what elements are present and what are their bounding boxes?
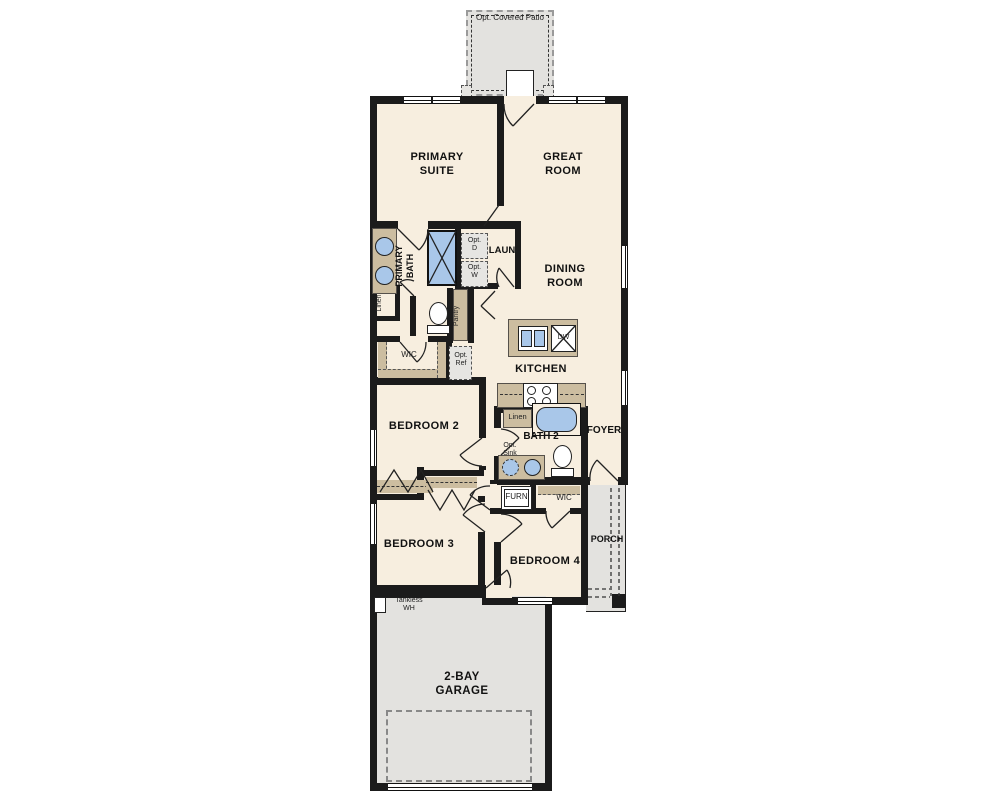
- wall-garage-right: [545, 604, 552, 790]
- wic1-shelf-bottom: [378, 369, 445, 378]
- wall-bath2-right: [581, 406, 588, 485]
- opt-ref-label: Opt. Ref: [449, 352, 473, 368]
- dishwasher-label: DW: [551, 334, 576, 342]
- window-dining-2: [621, 371, 628, 405]
- bed3-closet-shelf-dash: [426, 482, 477, 483]
- linen1-label: Linen: [376, 288, 390, 318]
- opt-washer-label: Opt. W: [461, 264, 488, 280]
- pantry-label: Pantry: [453, 296, 467, 336]
- tub: [536, 407, 577, 432]
- window-bedroom2: [370, 430, 377, 466]
- wall-bedroom3-bottom: [370, 585, 486, 592]
- island-sink-left: [521, 330, 532, 347]
- bath2-opt-sink: [502, 459, 519, 476]
- patio-door-opening: [504, 96, 536, 104]
- bedroom3-label: BEDROOM 3: [359, 537, 479, 551]
- primary-toilet-tank: [427, 325, 450, 334]
- primary-bath-label: PRIMARY BATH: [394, 236, 424, 296]
- patio-label: Opt. Covered Patio: [454, 13, 566, 23]
- furnace-label: FURN: [501, 492, 532, 502]
- bed4-door-opening: [494, 514, 501, 542]
- linen2-label: Linen: [503, 413, 532, 422]
- bedroom2-label: BEDROOM 2: [364, 419, 484, 433]
- bath2-toilet-bowl: [553, 445, 572, 468]
- bedroom4-label: BEDROOM 4: [485, 554, 605, 568]
- bed2-door-opening: [479, 438, 486, 466]
- patio-door-landing: [506, 70, 534, 98]
- opt-dryer-label: Opt. D: [461, 237, 488, 253]
- front-door-opening: [590, 477, 618, 485]
- burner-1: [527, 386, 536, 395]
- burner-2: [542, 386, 551, 395]
- primary-suite-label: PRIMARY SUITE: [377, 150, 497, 178]
- suite-door-opening: [398, 221, 428, 229]
- porch-label: PORCH: [577, 534, 637, 545]
- porch-area: [586, 484, 626, 612]
- counter-dash-left: [500, 394, 522, 395]
- bed3-door-opening: [478, 502, 485, 532]
- foyer-label: FOYER: [574, 425, 634, 438]
- tankless-water-heater: [374, 597, 386, 613]
- bed2-closet-shelf-dash: [377, 486, 433, 487]
- shower: [427, 230, 457, 286]
- garage-door-opening: [388, 783, 532, 791]
- window-greatroom-2: [578, 96, 605, 104]
- wall-closetB-top: [417, 470, 484, 476]
- wall-pantry-right: [468, 288, 474, 343]
- primary-sink-1: [375, 237, 394, 256]
- wall-toilet-nook-left: [410, 296, 416, 341]
- wic2-label: WIC: [540, 493, 588, 503]
- window-suite-2: [433, 96, 460, 104]
- wic1-door-opening: [400, 336, 428, 342]
- garage-label: 2-BAY GARAGE: [402, 670, 522, 698]
- wic1-label: WIC: [384, 350, 434, 360]
- dining-room-label: DINING ROOM: [505, 262, 625, 290]
- wic2-door-opening: [546, 508, 570, 514]
- tankless-wh-label: Tankless WH: [386, 597, 432, 613]
- window-greatroom-1: [549, 96, 576, 104]
- island-sink-right: [534, 330, 545, 347]
- kitchen-label: KITCHEN: [491, 362, 591, 376]
- bath2-sink: [524, 459, 541, 476]
- counter-dash-right: [560, 394, 584, 395]
- window-suite-1: [404, 96, 431, 104]
- bath2-toilet-tank: [551, 468, 574, 477]
- opt-sink-label: Opt. Sink: [496, 442, 524, 458]
- garage-parking-dashed: [386, 710, 532, 782]
- wall-closetA-bottom: [370, 494, 424, 500]
- garage-entry-opening: [486, 585, 512, 598]
- primary-sink-2: [375, 266, 394, 285]
- window-bedroom4: [518, 597, 552, 605]
- primary-toilet-bowl: [429, 302, 448, 325]
- great-room-label: GREAT ROOM: [503, 150, 623, 178]
- porch-column: [612, 594, 626, 608]
- floor-plan: Opt. Covered Patio PRIMARY SUITE GREAT R…: [0, 0, 1000, 800]
- furn-door-opening: [490, 484, 497, 508]
- wic1-shelf-right: [437, 342, 446, 378]
